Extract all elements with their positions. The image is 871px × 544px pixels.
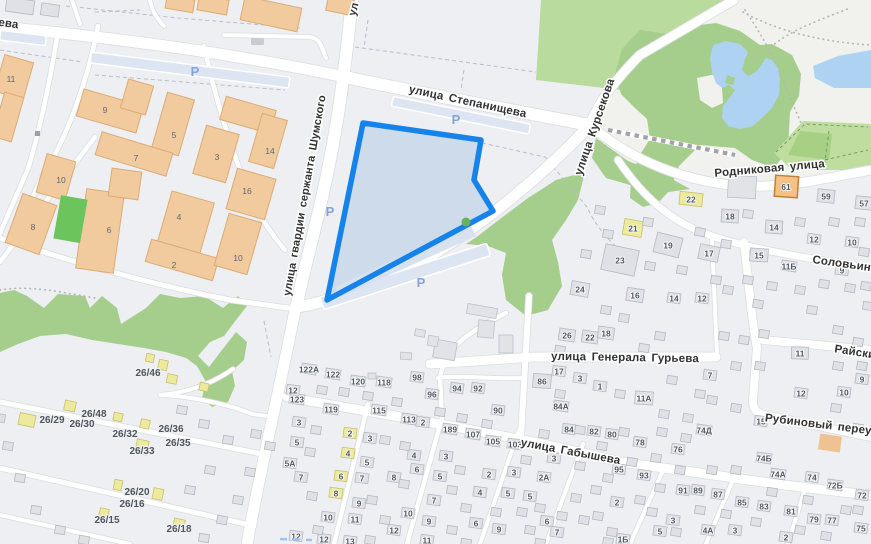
svg-text:80: 80 (607, 430, 617, 440)
svg-text:83: 83 (759, 502, 769, 512)
svg-text:57: 57 (859, 199, 869, 209)
svg-text:93: 93 (639, 471, 649, 481)
svg-text:22: 22 (585, 333, 595, 343)
svg-text:26/46: 26/46 (135, 368, 160, 379)
svg-text:P: P (417, 275, 426, 290)
svg-text:122А: 122А (299, 365, 319, 375)
svg-text:12: 12 (389, 526, 399, 536)
svg-text:3: 3 (215, 152, 220, 162)
svg-text:89: 89 (693, 486, 703, 496)
svg-text:17: 17 (704, 249, 714, 259)
svg-text:14: 14 (769, 223, 779, 233)
svg-text:96: 96 (427, 390, 437, 400)
svg-text:7: 7 (360, 474, 365, 484)
svg-text:12: 12 (697, 294, 707, 304)
svg-text:26/29: 26/29 (39, 415, 64, 426)
svg-text:75: 75 (856, 524, 866, 534)
svg-text:5: 5 (528, 492, 533, 502)
svg-text:11: 11 (7, 74, 16, 84)
svg-text:85: 85 (737, 498, 747, 508)
svg-text:26/32: 26/32 (112, 429, 137, 440)
svg-text:6: 6 (339, 472, 344, 482)
svg-text:59: 59 (821, 192, 831, 202)
svg-text:77: 77 (827, 516, 837, 526)
svg-text:5: 5 (295, 438, 300, 448)
svg-text:123: 123 (290, 395, 304, 405)
svg-text:82: 82 (589, 427, 599, 437)
svg-text:7: 7 (555, 528, 560, 538)
svg-text:87: 87 (713, 490, 723, 500)
svg-text:74А: 74А (770, 470, 786, 480)
svg-text:11: 11 (351, 515, 360, 525)
svg-text:P: P (452, 112, 461, 127)
svg-text:12: 12 (796, 389, 806, 399)
svg-text:17: 17 (554, 367, 564, 377)
svg-text:5: 5 (172, 130, 177, 140)
svg-text:10: 10 (403, 509, 413, 519)
svg-text:2: 2 (421, 418, 426, 428)
svg-text:12: 12 (319, 535, 329, 544)
svg-text:18: 18 (725, 212, 735, 222)
svg-text:4: 4 (412, 451, 417, 461)
svg-text:7: 7 (134, 153, 139, 163)
svg-text:120: 120 (351, 377, 365, 387)
svg-text:26/18: 26/18 (166, 524, 191, 535)
svg-text:9: 9 (860, 375, 865, 385)
svg-text:2: 2 (172, 260, 177, 270)
svg-text:14: 14 (669, 294, 679, 304)
svg-text:74Б: 74Б (756, 454, 772, 464)
svg-text:26/36: 26/36 (158, 424, 183, 435)
svg-text:15: 15 (754, 251, 764, 261)
svg-text:74Д: 74Д (696, 426, 712, 436)
svg-text:5: 5 (438, 472, 443, 482)
svg-text:10: 10 (56, 175, 66, 185)
svg-text:107: 107 (466, 430, 480, 440)
svg-text:9: 9 (103, 105, 108, 115)
svg-text:72: 72 (857, 491, 867, 501)
svg-text:8: 8 (334, 489, 339, 499)
svg-text:2: 2 (615, 498, 620, 508)
svg-text:91: 91 (678, 486, 688, 496)
svg-text:6: 6 (474, 519, 479, 529)
svg-text:2А: 2А (539, 473, 550, 483)
svg-text:119: 119 (324, 405, 338, 415)
svg-text:19: 19 (663, 241, 673, 251)
svg-text:2: 2 (487, 470, 492, 480)
svg-text:6: 6 (545, 517, 550, 527)
svg-text:10: 10 (233, 253, 243, 263)
svg-text:9: 9 (427, 517, 432, 527)
svg-text:3: 3 (444, 452, 449, 462)
svg-text:8: 8 (392, 473, 397, 483)
svg-text:2: 2 (348, 429, 353, 439)
svg-text:11: 11 (796, 349, 805, 359)
svg-text:4: 4 (346, 449, 351, 459)
svg-text:18: 18 (601, 329, 611, 339)
svg-text:5: 5 (658, 527, 663, 537)
svg-text:26: 26 (562, 331, 572, 341)
svg-text:10: 10 (323, 513, 333, 523)
svg-text:26/30: 26/30 (69, 419, 94, 430)
svg-text:113: 113 (402, 415, 416, 425)
svg-text:26/35: 26/35 (165, 438, 190, 449)
svg-text:74: 74 (807, 473, 817, 483)
svg-text:3: 3 (733, 526, 738, 536)
svg-text:3: 3 (368, 434, 373, 444)
svg-text:11А: 11А (636, 394, 651, 404)
svg-text:86: 86 (537, 377, 547, 387)
svg-text:79: 79 (809, 515, 819, 525)
svg-text:3: 3 (578, 374, 583, 384)
svg-text:6: 6 (107, 225, 112, 235)
svg-text:8: 8 (31, 222, 36, 232)
svg-text:9: 9 (497, 525, 502, 535)
svg-text:1: 1 (598, 382, 603, 392)
svg-text:11: 11 (423, 536, 432, 544)
svg-text:76: 76 (673, 445, 683, 455)
svg-text:7: 7 (432, 496, 437, 506)
svg-text:84: 84 (564, 425, 574, 435)
svg-text:84А: 84А (553, 402, 569, 412)
svg-text:26/20: 26/20 (124, 487, 149, 498)
svg-text:13: 13 (345, 537, 355, 544)
svg-text:4: 4 (177, 212, 182, 222)
svg-text:92: 92 (473, 384, 483, 394)
svg-text:115: 115 (372, 406, 386, 416)
svg-text:2: 2 (784, 533, 789, 543)
svg-text:4А: 4А (703, 526, 714, 536)
svg-text:6: 6 (415, 465, 420, 475)
svg-text:61: 61 (781, 182, 791, 192)
svg-text:26/16: 26/16 (119, 499, 144, 510)
svg-text:10: 10 (847, 238, 857, 248)
svg-text:81: 81 (786, 507, 796, 517)
svg-text:4: 4 (478, 488, 483, 498)
svg-text:90: 90 (493, 406, 503, 416)
svg-text:11Б: 11Б (781, 262, 796, 272)
svg-text:26/33: 26/33 (129, 446, 154, 457)
svg-text:P: P (326, 204, 335, 219)
svg-text:189: 189 (443, 425, 457, 435)
svg-text:12: 12 (809, 235, 819, 245)
svg-text:9: 9 (357, 499, 362, 509)
svg-text:3: 3 (671, 516, 676, 526)
svg-text:122: 122 (326, 370, 340, 380)
svg-text:22: 22 (686, 195, 696, 205)
svg-text:10: 10 (839, 388, 849, 398)
svg-text:7: 7 (708, 371, 713, 381)
svg-text:5А: 5А (285, 459, 296, 469)
svg-text:3: 3 (512, 468, 517, 478)
svg-text:118: 118 (377, 378, 391, 388)
svg-text:14: 14 (265, 146, 275, 156)
svg-text:23: 23 (615, 256, 625, 266)
svg-text:P: P (191, 64, 200, 79)
svg-text:78: 78 (635, 438, 645, 448)
svg-text:5: 5 (365, 458, 370, 468)
svg-text:7: 7 (299, 473, 304, 483)
svg-text:72Б: 72Б (827, 481, 843, 491)
svg-text:94: 94 (452, 384, 462, 394)
svg-text:3: 3 (297, 418, 302, 428)
svg-text:16: 16 (630, 291, 640, 301)
svg-text:21: 21 (628, 224, 638, 234)
svg-text:98: 98 (412, 373, 422, 383)
svg-text:24: 24 (575, 285, 585, 295)
svg-text:16: 16 (242, 186, 252, 196)
svg-text:12: 12 (288, 386, 298, 396)
svg-text:ева: ева (0, 17, 20, 32)
svg-text:1Б: 1Б (618, 535, 629, 544)
svg-text:26/15: 26/15 (94, 515, 119, 526)
svg-text:105: 105 (486, 437, 500, 447)
svg-text:5: 5 (506, 489, 511, 499)
